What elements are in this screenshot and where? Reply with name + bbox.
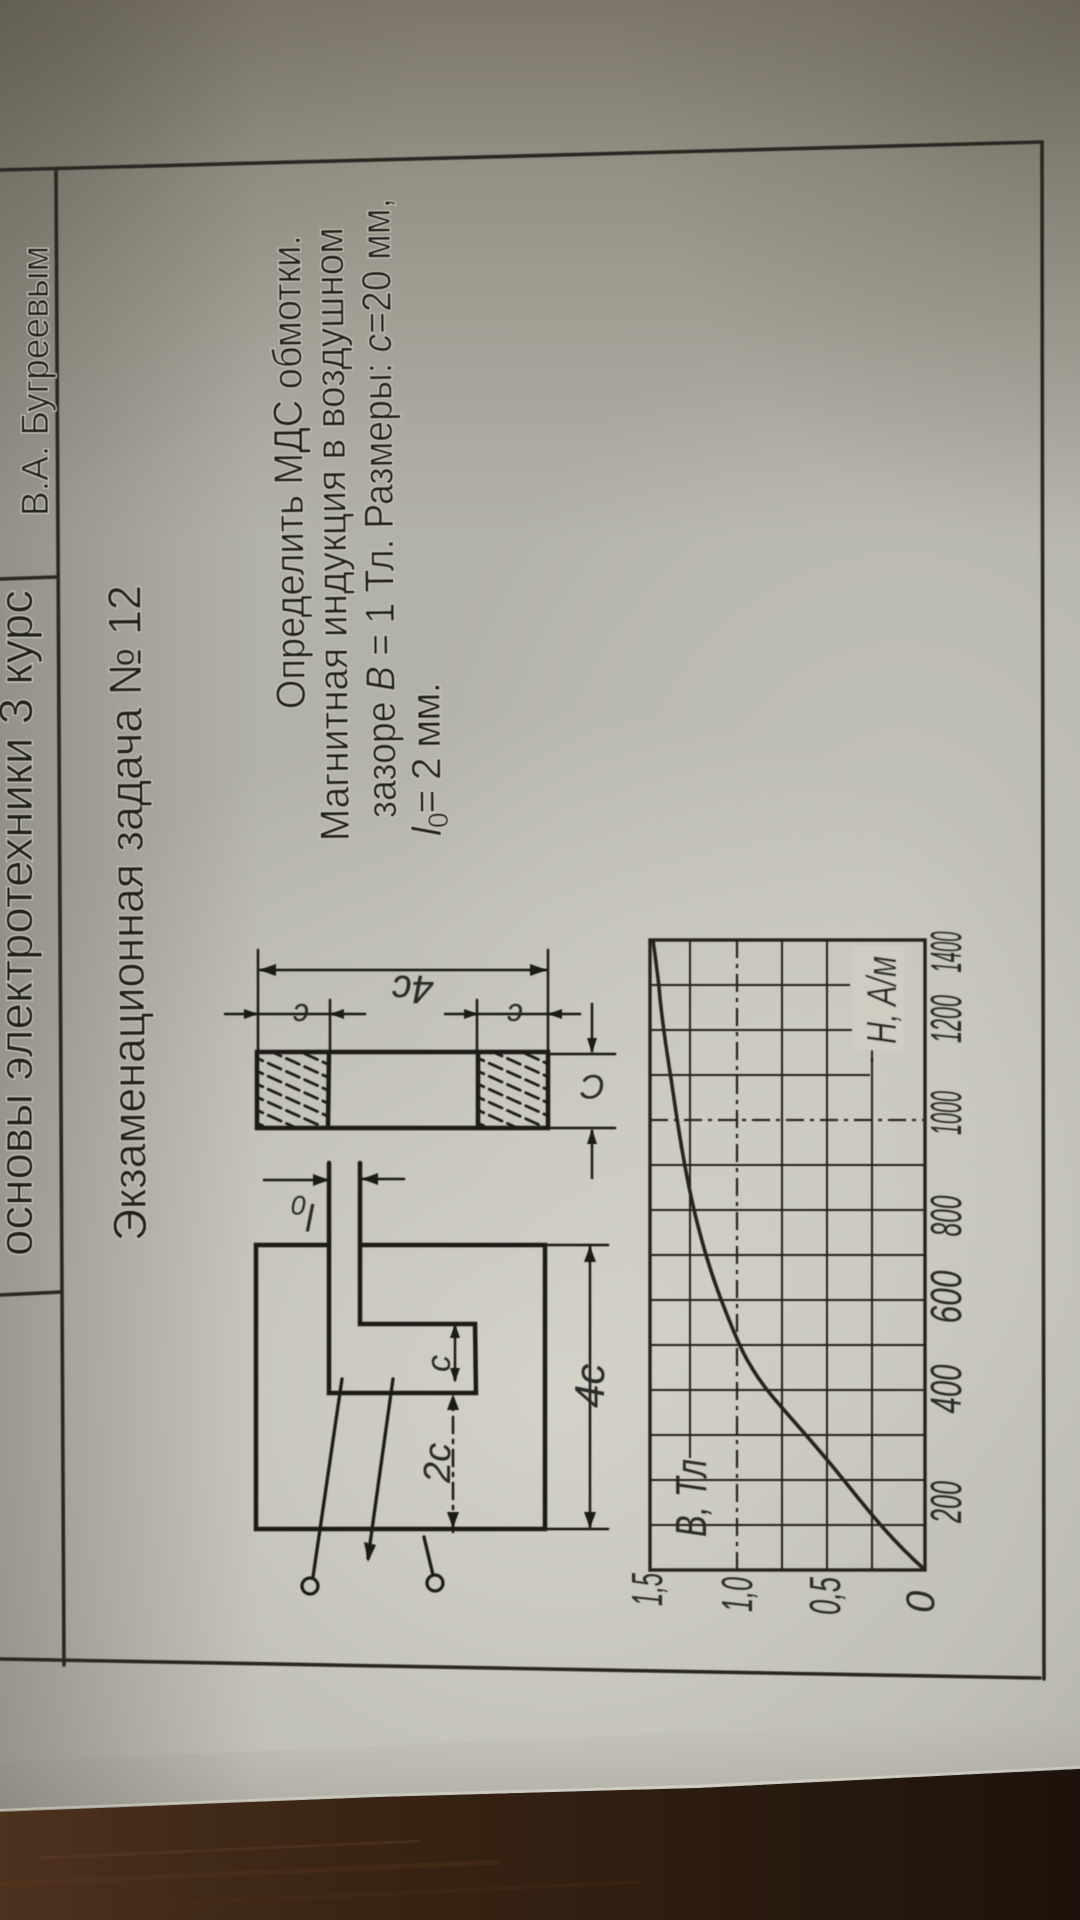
- svg-text:Экзаменационная задача № 12: Экзаменационная задача № 12: [98, 585, 156, 1241]
- svg-text:c: c: [507, 997, 523, 1033]
- svg-text:H, A/м: H, A/м: [858, 956, 905, 1044]
- svg-text:основы электротехники 3 курс: основы электротехники 3 курс: [0, 590, 42, 1256]
- svg-text:c: c: [293, 997, 309, 1033]
- svg-text:200: 200: [922, 1481, 971, 1524]
- svg-text:B, Tл: B, Tл: [667, 1459, 716, 1537]
- svg-text:1200: 1200: [922, 995, 971, 1043]
- svg-text:400: 400: [922, 1364, 971, 1413]
- svg-text:1,0: 1,0: [713, 1577, 762, 1612]
- svg-text:C: C: [580, 1067, 605, 1105]
- svg-text:1400: 1400: [922, 931, 971, 972]
- svg-text:2c: 2c: [417, 1443, 459, 1484]
- svg-text:0,5: 0,5: [801, 1577, 850, 1615]
- svg-text:4c: 4c: [566, 1364, 613, 1408]
- svg-text:c: c: [420, 1355, 458, 1372]
- svg-text:1000: 1000: [922, 1091, 971, 1135]
- svg-text:0: 0: [899, 1591, 943, 1613]
- svg-text:зазоре B = 1 Тл. Размеры: c=20: зазоре B = 1 Тл. Размеры: c=20 мм,: [353, 198, 405, 818]
- svg-text:600: 600: [922, 1270, 971, 1323]
- svg-text:В.А. Бугреевым: В.А. Бугреевым: [15, 246, 57, 516]
- svg-text:800: 800: [922, 1195, 971, 1236]
- svg-text:Магнитная индукция в воздушном: Магнитная индукция в воздушном: [306, 227, 358, 841]
- svg-text:l0= 2 мм.: l0= 2 мм.: [402, 683, 454, 836]
- svg-text:1,5: 1,5: [623, 1573, 672, 1606]
- svg-text:4c: 4c: [392, 967, 434, 1011]
